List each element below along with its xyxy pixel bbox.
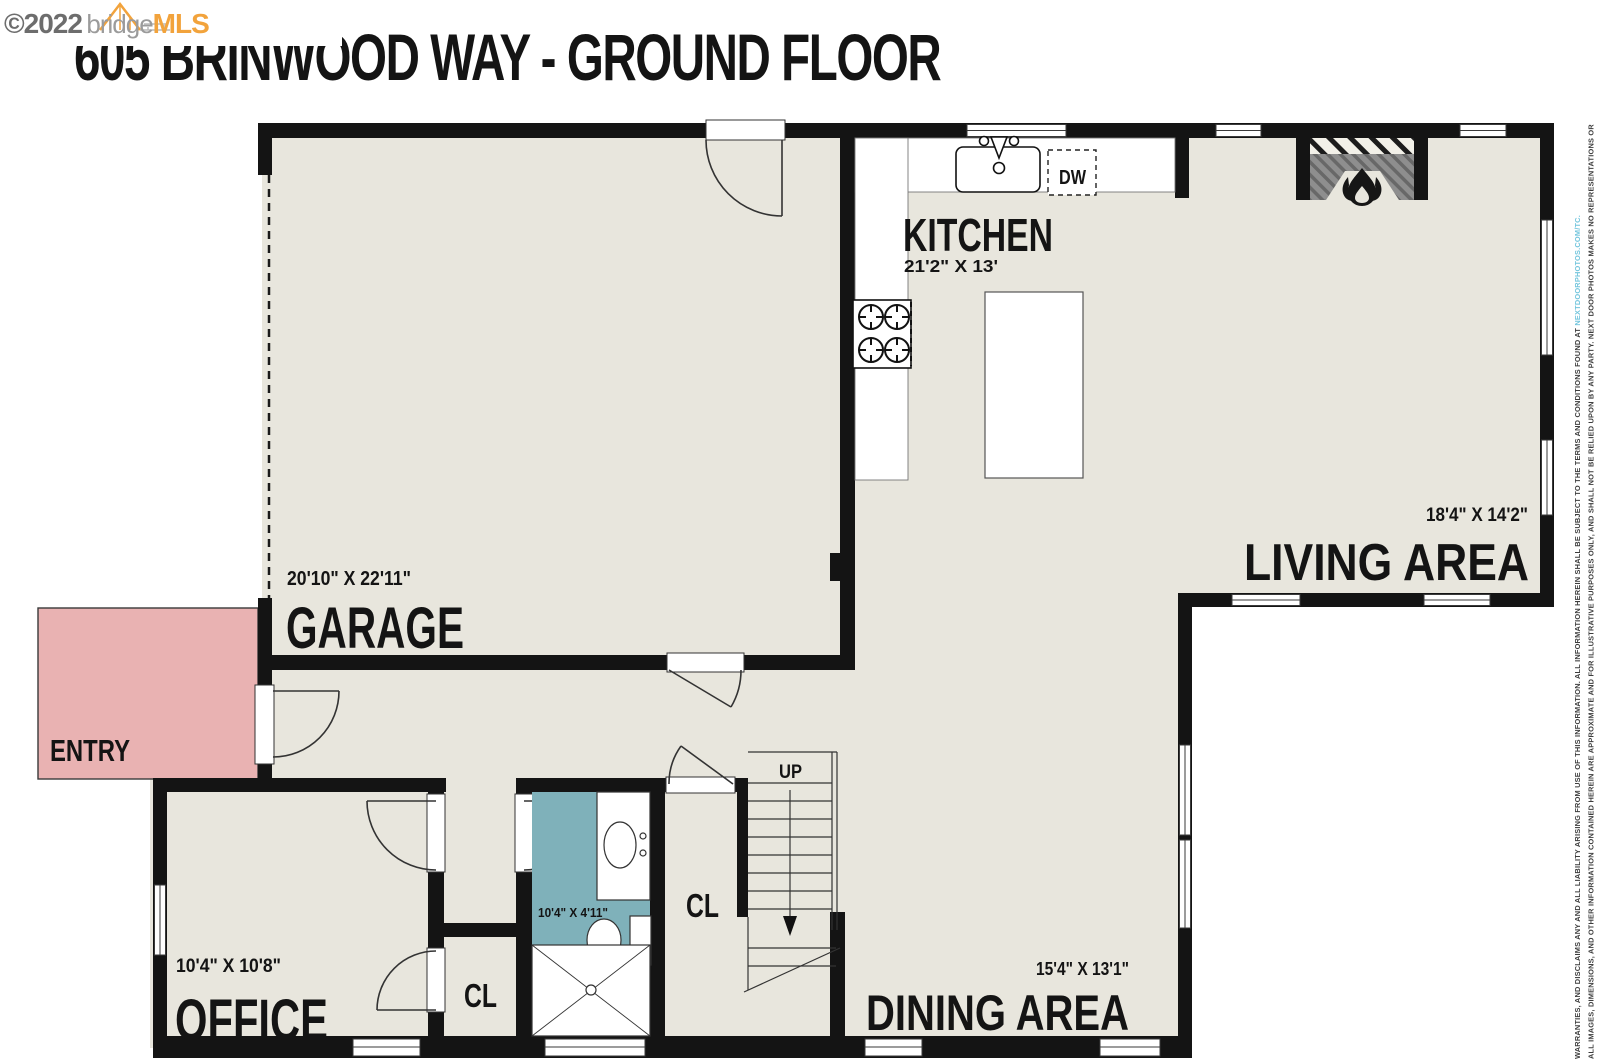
garage-label: GARAGE xyxy=(286,596,464,661)
dishwasher-label: DW xyxy=(1059,167,1086,189)
hall-closet-label: CL xyxy=(686,887,719,924)
bathroom-dimensions: 10'4" X 4'11" xyxy=(538,906,608,920)
living-area-label: LIVING AREA xyxy=(1244,534,1529,592)
living-area-dimensions: 18'4" X 14'2" xyxy=(1426,505,1528,526)
office-dimensions: 10'4" X 10'8" xyxy=(176,956,281,977)
dining-area-label: DINING AREA xyxy=(866,985,1129,1041)
floorplan-drawing: ENTRY xyxy=(0,0,1600,1063)
vanity-sink xyxy=(597,792,650,900)
office-closet-label: CL xyxy=(464,977,497,1014)
bathroom: 10'4" X 4'11" xyxy=(532,792,651,1036)
garage-dimensions: 20'10" X 22'11" xyxy=(287,568,411,590)
dining-area-dimensions: 15'4" X 13'1" xyxy=(1036,958,1129,979)
disclaimer-text: ALL IMAGES, DIMENSIONS, AND OTHER INFORM… xyxy=(1571,259,1598,1059)
kitchen-island xyxy=(985,292,1083,478)
office-label: OFFICE xyxy=(175,988,328,1053)
disclaimer-link: NEXTDOORPHOTOS.COM/TC. xyxy=(1573,215,1582,326)
watermark-copyright: ©2022 xyxy=(4,8,82,39)
stairs-up-label: UP xyxy=(779,762,802,783)
entry-porch: ENTRY xyxy=(38,608,258,779)
entry-label: ENTRY xyxy=(50,733,130,768)
stove xyxy=(853,300,911,368)
watermark-brand-bridge: bridge xyxy=(86,9,152,39)
floorplan-page: ENTRY xyxy=(0,0,1600,1063)
shower xyxy=(532,945,650,1036)
watermark: ©2022 bridgeMLS xyxy=(2,2,342,46)
fireplace xyxy=(1310,138,1414,206)
dishwasher: DW xyxy=(1048,150,1096,195)
watermark-brand-mls: MLS xyxy=(153,8,209,39)
kitchen-dimensions: 21'2" X 13' xyxy=(904,256,998,276)
kitchen-label: KITCHEN xyxy=(903,209,1053,261)
disclaimer-line-2: WARRANTIES, AND DISCLAIMS ANY AND ALL LI… xyxy=(1571,259,1585,1059)
disclaimer-line-1: ALL IMAGES, DIMENSIONS, AND OTHER INFORM… xyxy=(1585,259,1599,1059)
